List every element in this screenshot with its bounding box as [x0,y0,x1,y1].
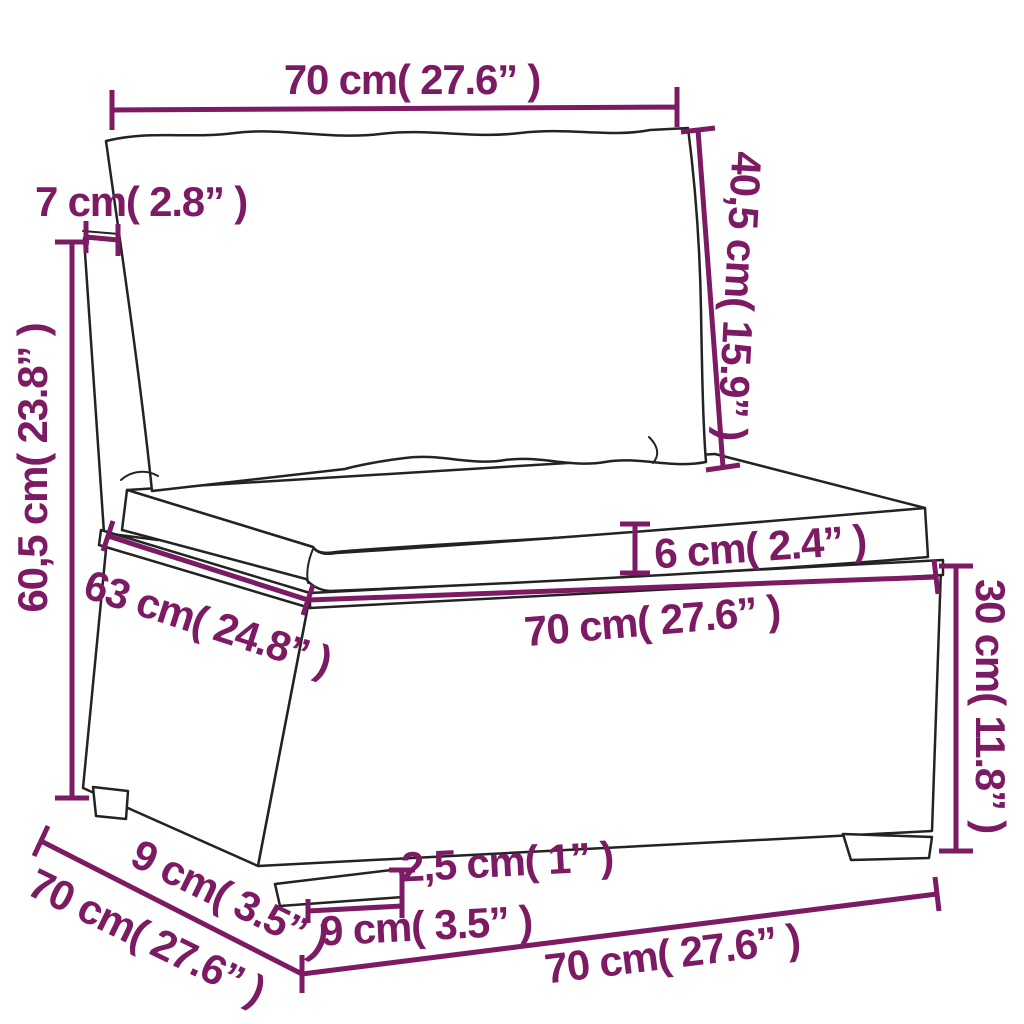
dim-total-height-label: 60,5 cm( 23.8” ) [9,324,56,613]
sofa-line-art [83,128,943,906]
foot-front-left [275,869,403,906]
dim-back-thickness-label: 7 cm( 2.8” ) [35,178,247,225]
dim-total-height: 60,5 cm( 23.8” ) [9,242,89,798]
dim-cushion-width-label: 70 cm( 27.6” ) [284,56,540,103]
foot-front-right [843,834,932,860]
diagram-canvas: 70 cm( 27.6” ) 7 cm( 2.8” ) 40,5 cm( 15.… [0,0,1024,1024]
dim-base-height: 30 cm( 11.8” ) [939,566,1014,851]
foot-back-left [93,787,128,819]
dim-total-height-line [55,242,89,798]
dim-base-height-label: 30 cm( 11.8” ) [967,579,1014,833]
dim-foot-width: 9 cm( 3.5” ) [308,897,533,955]
dim-foot-width-label: 9 cm( 3.5” ) [319,897,533,955]
dim-cushion-width: 70 cm( 27.6” ) [112,56,677,130]
sofa-dimension-diagram: 70 cm( 27.6” ) 7 cm( 2.8” ) 40,5 cm( 15.… [0,0,1024,1024]
dim-foot-height-label: 2,5 cm( 1” ) [400,833,614,891]
dim-back-cushion-height-label: 40,5 cm( 15.9” ) [708,150,770,441]
